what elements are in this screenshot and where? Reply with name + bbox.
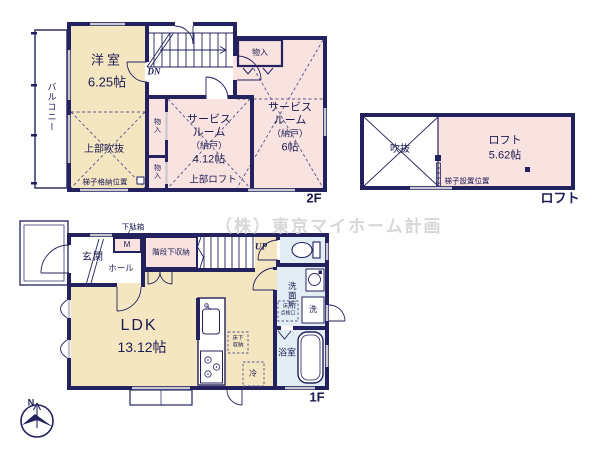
company-watermark: （株）東京マイホーム計画 [215, 212, 443, 237]
loft-room-size: 5.62帖 [489, 151, 521, 162]
void-label: 吹抜 [390, 145, 410, 155]
closet-top-label: 物入 [252, 49, 268, 57]
stairs-up-label: UP [255, 243, 267, 252]
open-above-label: 上部吹抜 [84, 145, 124, 155]
toilet-icon [292, 242, 320, 258]
service-right-l2: ルーム [274, 116, 307, 127]
upper-loft-label: 上部ロフト [189, 175, 237, 185]
inspection-l2: 点検口 [280, 312, 295, 317]
fridge-label: 冷 [249, 370, 257, 378]
hall-label: ホール [108, 264, 134, 273]
ldk-size: 13.12帖 [117, 340, 166, 354]
compass-north-label: N [28, 399, 35, 408]
inspection-l1: 床下 [283, 305, 293, 310]
service-mid-l3: （納戸） [191, 142, 227, 151]
underfloor-storage-l1: 床下 [232, 336, 243, 342]
service-mid-size: 4.12帖 [193, 155, 225, 166]
washbasin-icon [306, 269, 324, 291]
service-right-upper-fill [233, 40, 237, 188]
service-mid-l1: サービス [187, 115, 231, 126]
entrance-label: 玄関 [82, 253, 104, 263]
loft-dot [525, 167, 530, 172]
stove-icon [201, 351, 223, 383]
service-right-l3: （納戸） [272, 130, 308, 139]
service-right-size: 6帖 [281, 143, 298, 154]
entrance-porch [20, 221, 68, 285]
kitchen-counter [196, 298, 225, 385]
under-stair-storage-label: 階段下収納 [152, 248, 190, 256]
ladder-storage-label: 梯子格納位置 [83, 178, 128, 186]
western-room-label: 洋室 [91, 54, 123, 67]
closet-a-label: 物入 [154, 118, 161, 134]
mirror-label: M [124, 241, 131, 249]
loft-floor-label: ロフト [540, 192, 579, 205]
ldk-label: LDK [120, 318, 157, 334]
service-right-l1: サービス [268, 103, 312, 114]
underfloor-storage-l2: 収納 [232, 343, 243, 349]
service-mid-l2: ルーム [193, 128, 226, 139]
western-room-size: 6.25帖 [88, 76, 126, 89]
bathtub-icon [298, 332, 323, 383]
stairs-dn-label: DN [148, 68, 161, 77]
compass-icon [21, 403, 53, 437]
washer-label: 洗 [309, 306, 317, 314]
loft-window [410, 187, 452, 190]
western-room-fill [71, 26, 145, 188]
balcony-label: バルコニー [47, 82, 56, 132]
ladder-position-label: 梯子設置位置 [445, 177, 490, 185]
shoe-box-label: 下駄箱 [122, 223, 145, 231]
terrace-step [130, 390, 192, 405]
closet-a-door [165, 112, 167, 140]
closet-b-door [165, 162, 167, 184]
loft-room-label: ロフト [489, 136, 522, 147]
closet-b-label: 物入 [154, 164, 161, 180]
floor2-label: 2F [306, 192, 321, 205]
floor1-label: 1F [309, 391, 324, 404]
bathroom-label: 浴室 [278, 349, 296, 358]
ladder-storage-marker [137, 177, 144, 184]
